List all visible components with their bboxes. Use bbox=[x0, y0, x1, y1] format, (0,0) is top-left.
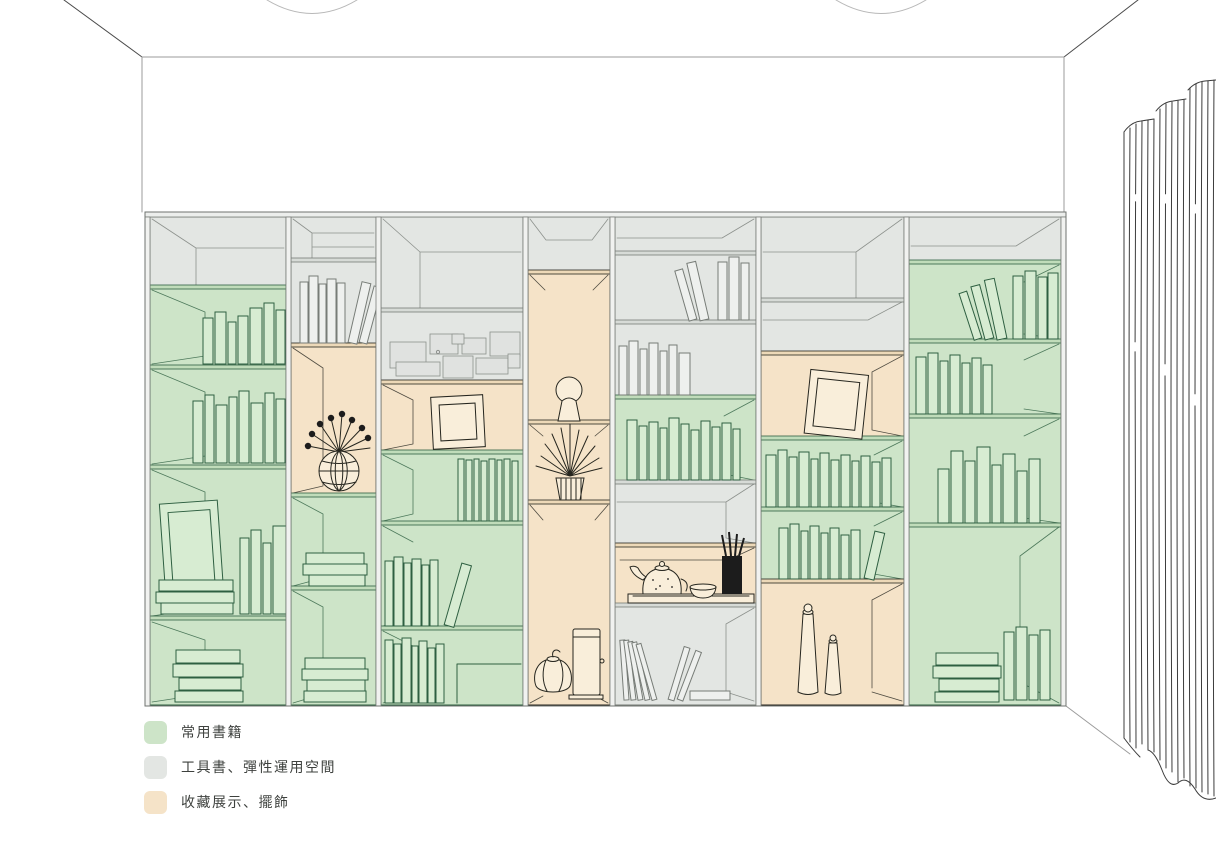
shelf-column-4 bbox=[528, 217, 610, 705]
legend-item-flex: 工具書、彈性運用空間 bbox=[144, 755, 336, 779]
shelf-column-6 bbox=[761, 217, 904, 705]
stacked-books bbox=[156, 580, 234, 614]
shelf-column-7 bbox=[909, 217, 1061, 705]
standing-books bbox=[193, 391, 285, 463]
legend-label-flex: 工具書、彈性運用空間 bbox=[181, 757, 336, 777]
shelf-column-5 bbox=[615, 217, 756, 705]
ceiling-light-icon bbox=[836, 0, 926, 14]
legend-label-books: 常用書籍 bbox=[181, 722, 243, 742]
picture-frame bbox=[431, 395, 486, 450]
shelf-column-3 bbox=[381, 217, 523, 705]
legend-swatch-flex bbox=[144, 756, 167, 779]
legend: 常用書籍 工具書、彈性運用空間 收藏展示、擺飾 bbox=[144, 720, 336, 814]
floor-lamp bbox=[569, 629, 604, 699]
standing-books bbox=[300, 276, 382, 344]
ceiling-light-icon bbox=[267, 0, 357, 14]
bookshelf bbox=[145, 212, 1066, 706]
legend-item-display: 收藏展示、擺飾 bbox=[144, 790, 336, 814]
legend-swatch-books bbox=[144, 721, 167, 744]
standing-books bbox=[627, 418, 740, 480]
shelf-column-1 bbox=[150, 217, 286, 705]
legend-swatch-display bbox=[144, 791, 167, 814]
curtain bbox=[1124, 80, 1216, 799]
legend-item-books: 常用書籍 bbox=[144, 720, 336, 744]
floor-line bbox=[1066, 706, 1130, 754]
stacked-books bbox=[302, 658, 368, 702]
shelf-column-2 bbox=[291, 217, 382, 705]
legend-label-display: 收藏展示、擺飾 bbox=[181, 792, 290, 812]
stacked-books bbox=[303, 553, 367, 586]
stacked-books bbox=[173, 650, 243, 702]
sculpture bbox=[556, 377, 582, 421]
illustration-canvas: 常用書籍 工具書、彈性運用空間 收藏展示、擺飾 bbox=[0, 0, 1216, 860]
picture-frame bbox=[804, 369, 868, 439]
